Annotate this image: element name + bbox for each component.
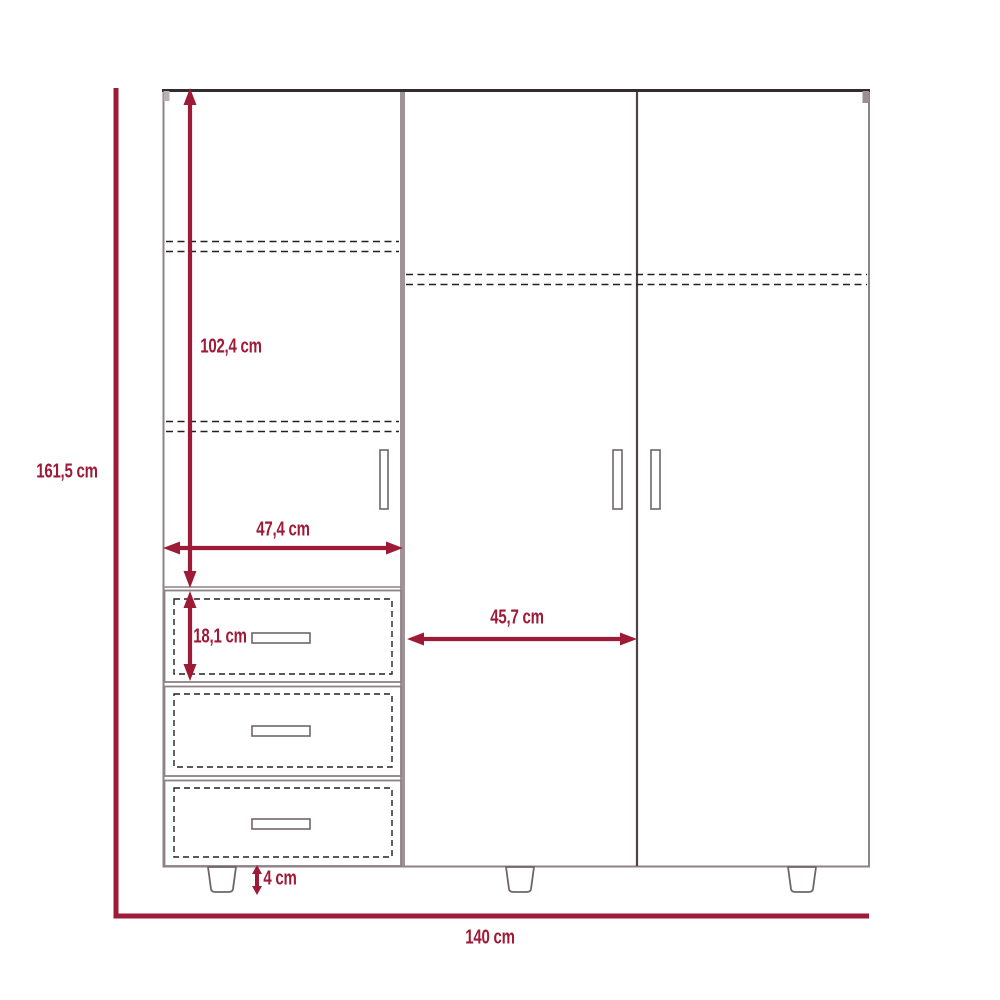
dimension-label-overall-height: 161,5 cm <box>36 461 98 484</box>
right-door-handle <box>651 450 660 509</box>
dimension-label-door-section-height: 102,4 cm <box>200 336 262 359</box>
leg-center <box>506 867 534 892</box>
dimension-label-drawer-height: 18,1 cm <box>193 626 246 649</box>
dimension-label-leg-height: 4 cm <box>263 868 296 891</box>
dimension-label-door-width: 45,7 cm <box>490 607 543 630</box>
leg-right <box>788 867 816 892</box>
drawer-1-handle <box>252 633 310 643</box>
dimension-label-overall-width: 140 cm <box>465 927 515 950</box>
diagram-canvas <box>0 0 1000 1000</box>
drawer-3-handle <box>252 819 310 829</box>
cabinet-top-right-notch <box>863 91 870 103</box>
wardrobe-dimension-diagram: 161,5 cm 102,4 cm 47,4 cm 18,1 cm 45,7 c… <box>0 0 1000 1000</box>
drawer-2-handle <box>252 726 310 736</box>
middle-door-handle <box>613 450 622 509</box>
left-door-handle <box>380 450 388 509</box>
arrowhead-down <box>252 886 262 895</box>
dimension-label-left-section-width: 47,4 cm <box>256 519 309 542</box>
leg-left <box>208 867 236 892</box>
dimension-arrow-leg-height <box>252 865 262 895</box>
cabinet-top-left-notch <box>164 91 170 101</box>
